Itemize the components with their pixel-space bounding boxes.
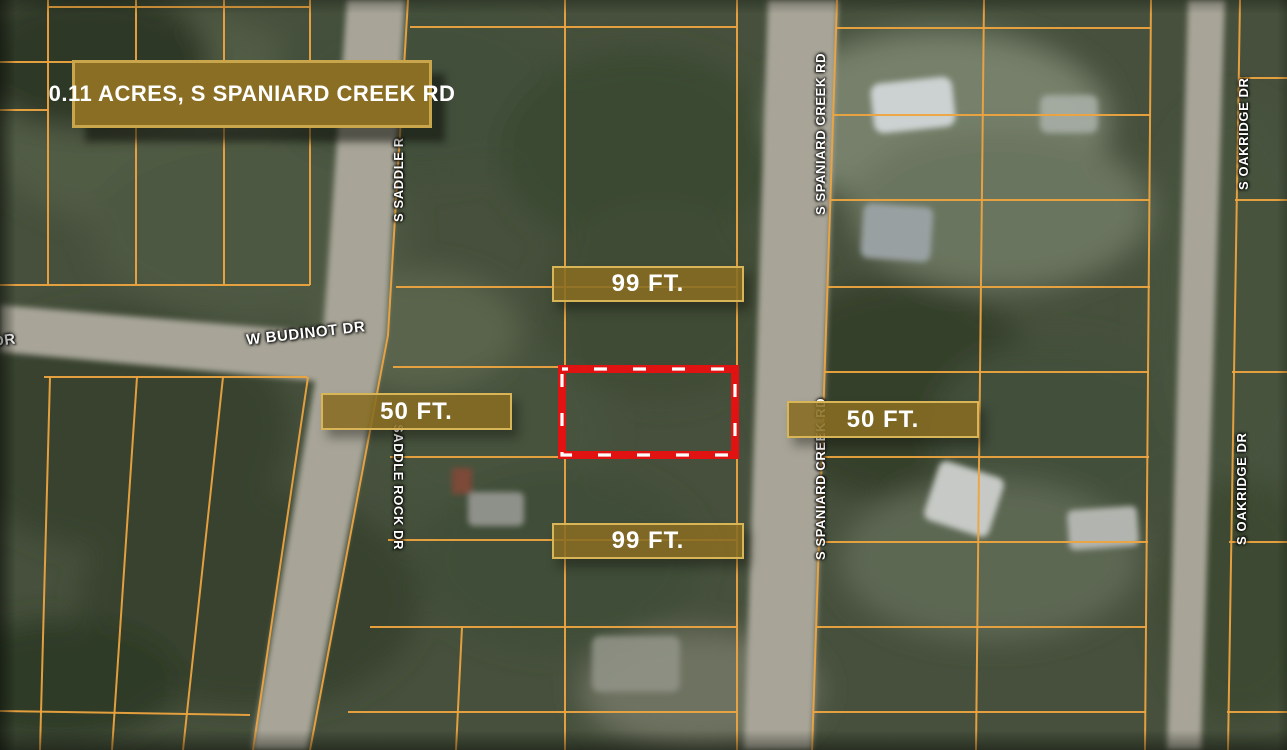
street-label-left-partial: DR <box>0 330 17 350</box>
dimension-label-right: 50 FT. <box>787 401 979 438</box>
dimension-label-left: 50 FT. <box>321 393 512 430</box>
street-label-oakridge-lower: S OAKRIDGE DR <box>1234 427 1249 545</box>
title-banner: 0.11 ACRES, S SPANIARD CREEK RD <box>72 60 432 128</box>
street-label-saddle-rock-lower: SADDLE ROCK DR <box>391 424 406 546</box>
street-label-oakridge-upper: S OAKRIDGE DR <box>1236 72 1251 190</box>
street-label-spaniard-creek-upper: S SPANIARD CREEK RD <box>813 57 828 215</box>
map-view: W BUDINOT DR DR S SADDLE R SADDLE ROCK D… <box>0 0 1287 750</box>
dimension-label-top: 99 FT. <box>552 266 744 302</box>
street-label-saddle-rock-upper: S SADDLE R <box>391 127 406 222</box>
dimension-label-bottom: 99 FT. <box>552 523 744 559</box>
